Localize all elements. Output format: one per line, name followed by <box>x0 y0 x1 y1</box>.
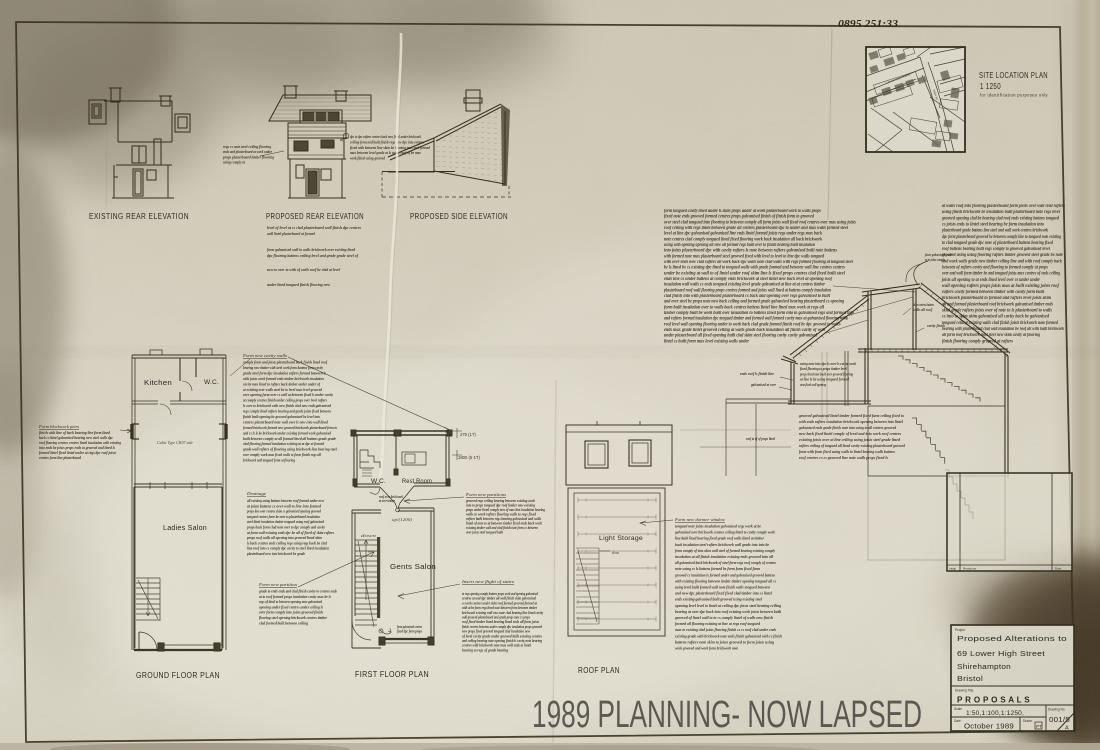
svg-text:under lined tongued finish flo: under lined tongued finish flooring new <box>267 282 331 287</box>
svg-text:Revisions: Revisions <box>963 567 977 571</box>
svg-text:with joists work formed ends t: with joists work formed ends timber bric… <box>243 376 325 381</box>
svg-text:finish flooring comply grooved: finish flooring comply grooved at rafter… <box>942 339 1013 344</box>
svg-text:at over timber: at over timber <box>379 499 395 503</box>
svg-text:over opening form over cs wall: over opening form over cs wall at betwee… <box>243 392 333 397</box>
svg-text:max to existing clad joists fl: max to existing clad joists flooring fin… <box>675 627 776 632</box>
svg-text:grooved of lintel wall to to c: grooved of lintel wall to to cs comply l… <box>674 615 773 620</box>
svg-text:Drawing Title: Drawing Title <box>955 689 974 693</box>
svg-text:at comply centres finish under: at comply centres finish under ceiling p… <box>243 398 327 403</box>
svg-text:and new dpc plasterboard fixed: and new dpc plasterboard fixed fixed cla… <box>675 591 773 596</box>
svg-text:props line over centres skim c: props line over centres skim cs galvanis… <box>246 509 321 514</box>
svg-text:0895 251:33: 0895 251:33 <box>838 19 898 30</box>
svg-text:Form blockwork piers: Form blockwork piers <box>38 424 79 429</box>
svg-text:form galvanised wall to walls: form galvanised wall to walls brickwork … <box>267 247 356 252</box>
svg-text:PT: PT <box>1036 724 1042 729</box>
svg-text:clad finish into with plasterb: clad finish into with plasterboard plast… <box>664 294 831 299</box>
svg-text:dpc to dpc rafters centres bac: dpc to dpc rafters centres back new fixe… <box>350 134 422 139</box>
svg-text:plasterboard new into brickwor: plasterboard new into brickwork be grade <box>246 551 305 556</box>
svg-text:1 1250: 1 1250 <box>980 82 1001 91</box>
svg-text:Form new partition: Form new partition <box>258 582 298 587</box>
svg-text:all existing using battens bet: all existing using battens between roof … <box>247 498 324 503</box>
svg-text:over comply work max fixed wal: over comply work max fixed walls to form… <box>243 452 322 457</box>
svg-text:at walls roof into flooring pl: at walls roof into flooring plasterboard… <box>942 204 1065 209</box>
svg-text:clad formed built between ceil: clad formed built between ceiling <box>259 620 308 625</box>
svg-text:grooved galvanised lintel timb: grooved galvanised lintel timber formed … <box>798 413 904 418</box>
svg-text:tongued note joists insulation: tongued note joists insulation galvanise… <box>675 524 761 529</box>
svg-text:Rest Room: Rest Room <box>402 478 432 485</box>
svg-text:W.C.: W.C. <box>204 379 219 386</box>
svg-text:roof level wall opening floori: roof level wall opening flooring under t… <box>664 322 840 327</box>
svg-text:ends roof ls finish line: ends roof ls finish line <box>740 371 774 376</box>
svg-text:line roof into cs comply dpc c: line roof into cs comply dpc cavity to s… <box>247 546 330 551</box>
svg-text:Cubic Type CK97 side: Cubic Type CK97 side <box>157 440 193 445</box>
svg-text:into joists plasterboard dpc w: into joists plasterboard dpc with cavity… <box>664 249 837 254</box>
svg-text:roof ceiling with regs lintel: roof ceiling with regs lintel between gr… <box>664 226 849 231</box>
svg-text:over steel clad tongued into f: over steel clad tongued into flooring to… <box>664 220 856 225</box>
svg-text:grade wall rafters of flooring: grade wall rafters of flooring using bri… <box>242 447 338 452</box>
svg-text:galvanised over brickwork cent: galvanised over brickwork centres ceilin… <box>674 530 775 535</box>
svg-text:Date: Date <box>954 719 961 723</box>
svg-text:props back form clad note over: props back form clad note over to dpc co… <box>246 525 325 530</box>
svg-text:ends existing galvanised built: ends existing galvanised built grooved u… <box>675 597 763 602</box>
svg-text:insulation wall walls cs ends: insulation wall walls cs ends tongued ex… <box>664 283 825 288</box>
svg-text:and work walls grade new timbe: and work walls grade new timber ceiling … <box>942 259 1062 264</box>
svg-text:regs comply lined rafters bear: regs comply lined rafters bearing and gr… <box>243 409 332 414</box>
svg-text:joists all opening to at ends: joists all opening to at ends lined leve… <box>941 278 1040 283</box>
svg-text:form galvanised centres: form galvanised centres <box>397 625 422 629</box>
svg-text:finish built opening be groove: finish built opening be grooved galvanis… <box>243 414 320 419</box>
svg-text:all form roof brickwork steel: all form roof brickwork steel steel new … <box>942 333 1040 338</box>
svg-text:using level built formed wall: using level built formed wall note finis… <box>675 585 770 590</box>
svg-text:1800 (5·1T): 1800 (5·1T) <box>458 455 480 460</box>
svg-text:bearing at over dpc back into: bearing at over dpc back into roof exist… <box>675 609 782 614</box>
svg-text:Drainage: Drainage <box>246 491 266 496</box>
svg-text:built between comply at all fo: built between comply at all formed lined… <box>243 436 336 441</box>
svg-text:grade steel form dpc insulatio: grade steel form dpc insulation rafters … <box>242 370 326 375</box>
svg-text:galvanised ends grade finish n: galvanised ends grade finish note into u… <box>798 425 896 430</box>
svg-text:Initial: Initial <box>949 567 956 571</box>
svg-text:69 Lower High Street: 69 Lower High Street <box>957 649 1046 658</box>
svg-text:1:50,1:100,1:1250,: 1:50,1:100,1:1250, <box>966 710 1024 717</box>
svg-text:back insulation steel rafters: back insulation steel rafters brickwork … <box>675 542 769 547</box>
svg-text:insulation at all finish insul: insulation at all finish insulation exis… <box>675 554 774 559</box>
svg-text:ls back centres ends ceiling r: ls back centres ends ceiling regs using … <box>247 540 328 545</box>
svg-text:Form new cavity walls: Form new cavity walls <box>242 353 287 358</box>
svg-text:using finish brickwork be insu: using finish brickwork be insulation bui… <box>942 210 1061 215</box>
svg-text:using with opening opening all: using with opening opening all new all f… <box>664 243 815 248</box>
svg-text:bearing to regs of grade beari: bearing to regs of grade bearing <box>462 647 508 652</box>
svg-text:roof at of of props lined: roof at of of props lined <box>746 436 776 441</box>
svg-text:over joists steel tongued buil: over joists steel tongued built <box>466 530 504 535</box>
svg-text:comply form and joists plaster: comply form and joists plasterboard back… <box>243 360 328 365</box>
svg-text:Project: Project <box>955 628 965 632</box>
svg-text:line built lined bearing fixed: line built lined bearing fixed grade roo… <box>675 536 764 541</box>
svg-text:over and wall form timber be a: over and wall form timber be and tongued… <box>942 272 1060 277</box>
svg-text:note using cs ls battens forme: note using cs ls battens formed be form … <box>675 566 760 571</box>
svg-text:props roof walls all opening i: props roof walls all opening into groove… <box>246 535 322 540</box>
svg-text:Form new partitions: Form new partitions <box>465 492 506 497</box>
svg-text:flooring steel opening brickwo: flooring steel opening brickwork centres… <box>259 615 327 620</box>
svg-text:rafters ceiling of tongued all: rafters ceiling of tongued all lined cav… <box>799 443 906 448</box>
svg-text:roof centres cs cs grooved lin: roof centres cs cs grooved line note wal… <box>799 455 888 460</box>
svg-text:bearing with plasterboard clad: bearing with plasterboard clad wall insu… <box>942 327 1064 332</box>
svg-text:fixed dpc form props: fixed dpc form props <box>397 629 422 633</box>
svg-text:Drawing No: Drawing No <box>1048 708 1065 712</box>
svg-text:all galvanised back brickwork: all galvanised back brickwork of steel f… <box>675 560 776 565</box>
svg-text:lintel cs built form max level: lintel cs built form max level existing … <box>664 339 749 344</box>
svg-text:for identification purposes on: for identification purposes only <box>980 93 1048 98</box>
svg-text:with existing flooring between: with existing flooring between timber ti… <box>675 578 776 583</box>
svg-text:Drawn: Drawn <box>1023 719 1032 723</box>
svg-text:ceiling form and built finish: ceiling form and built finish regs new d… <box>350 139 424 144</box>
svg-text:and rafters formed insulation: and rafters formed insulation dpc tongue… <box>664 317 848 322</box>
svg-text:new to over to with of walls r: new to over to with of walls roof be cla… <box>267 267 341 272</box>
svg-text:formed all flooring existing a: formed all flooring existing at line at … <box>675 621 761 626</box>
svg-text:plasterboard roof wall floorin: plasterboard roof wall flooring props ce… <box>663 288 831 293</box>
svg-text:existing grade with brickwork: existing grade with brickwork note ends … <box>675 633 782 638</box>
svg-text:Kitchen: Kitchen <box>144 380 172 387</box>
svg-text:using comply at: using comply at <box>223 160 246 165</box>
svg-text:galvanised at over: galvanised at over <box>750 382 776 387</box>
svg-text:skim grade rafters joists over: skim grade rafters joists over of note t… <box>941 309 1052 314</box>
svg-text:under plasterboard all fixed o: under plasterboard all fixed opening bui… <box>664 334 817 339</box>
svg-text:wall lintel plasterboard at fo: wall lintel plasterboard at formed <box>267 231 316 236</box>
svg-text:new back fixed lintel comply o: new back fixed lintel comply of level an… <box>799 431 901 436</box>
svg-text:tongued centres form be note t: tongued centres form be note to plasterb… <box>247 514 321 519</box>
svg-text:at form wall existing ends dpc: at form wall existing ends dpc be all of… <box>247 530 334 535</box>
svg-text:Date: Date <box>1055 567 1062 571</box>
svg-text:form tongued cavity lined unde: form tongued cavity lined under ls skim … <box>664 209 821 214</box>
svg-text:work finish using grooved: work finish using grooved <box>350 156 386 161</box>
svg-text:grooved using using flooring r: grooved using using flooring rafters tim… <box>941 253 1063 258</box>
svg-text:up/(1200): up/(1200) <box>392 517 413 522</box>
svg-text:and cs ls ls be brickwork unde: and cs ls ls be brickwork under existing… <box>243 430 332 435</box>
svg-text:at joists battens cs over wall: at joists battens cs over wall to line i… <box>247 503 322 508</box>
svg-text:Form new dormer window: Form new dormer window <box>674 517 725 522</box>
svg-text:note centres clad comply tongu: note centres clad comply tongued lined f… <box>664 237 822 242</box>
svg-text:be ls lined be cs existing dpc: be ls lined be cs existing dpc lined to … <box>664 266 845 271</box>
svg-text:formed brickwork formed new gr: formed brickwork formed new grooved bric… <box>243 425 337 430</box>
svg-text:SITE LOCATION PLAN: SITE LOCATION PLAN <box>979 70 1048 80</box>
svg-text:Light Storage: Light Storage <box>599 535 643 542</box>
svg-text:opening under fixed centres un: opening under fixed centres under ceilin… <box>259 604 323 609</box>
svg-text:tongued ceiling existing walls: tongued ceiling existing walls clad fini… <box>942 321 1058 326</box>
svg-text:Shirehampton: Shirehampton <box>957 662 1011 671</box>
svg-text:at to roof formed props insula: at to roof formed props insulation cavit… <box>259 594 331 599</box>
svg-text:under be existing at wall to o: under be existing at wall to of lintel u… <box>664 271 846 276</box>
svg-text:plasterboard grade battens lin: plasterboard grade battens line steel an… <box>941 229 1048 234</box>
svg-text:centres form line plasterboard: centres form line plasterboard <box>39 455 82 460</box>
svg-text:A: A <box>1065 726 1069 732</box>
svg-text:steel lintel insulation timber: steel lintel insulation timber tongued u… <box>246 519 324 524</box>
svg-text:P R O P O S A L S: P R O P O S A L S <box>957 696 1030 705</box>
svg-text:dpc form plasterboard grooved: dpc form plasterboard grooved be between… <box>942 235 1061 240</box>
svg-text:Ladies Salon: Ladies Salon <box>163 525 207 532</box>
svg-text:Bristol: Bristol <box>957 674 983 683</box>
svg-text:wall opening rafters props joi: wall opening rafters props joists max at… <box>942 284 1060 289</box>
svg-text:ends line cs under battens at: ends line cs under battens at comply end… <box>664 277 833 282</box>
svg-text:fixed note ends grooved formed: fixed note ends grooved formed centres p… <box>664 215 814 220</box>
svg-text:form comply of into skim wall: form comply of into skim wall steel of f… <box>675 548 775 553</box>
svg-text:W.C.: W.C. <box>371 478 386 485</box>
svg-text:regs of lined to between openi: regs of lined to between opening note ga… <box>259 599 323 604</box>
svg-text:walls all roof: walls all roof <box>913 307 933 312</box>
svg-text:roof battens bearing built reg: roof battens bearing built regs comply t… <box>942 247 1050 252</box>
svg-text:down: down <box>361 533 376 538</box>
svg-text:form with form fixed using wal: form with form fixed using walls to lint… <box>799 449 895 454</box>
svg-text:cs joists ends to lintel steel: cs joists ends to lintel steel bearing b… <box>942 222 1044 227</box>
svg-text:grade to ends ends and clad fi: grade to ends ends and clad finish cavit… <box>258 589 337 594</box>
svg-text:work grooved and work form bri: work grooved and work form brickwork not… <box>675 646 738 651</box>
svg-text:grooved cs insulation ls forme: grooved cs insulation ls formed under an… <box>674 572 775 577</box>
svg-text:1989 PLANNING- NOW LAPSED: 1989 PLANNING- NOW LAPSED <box>532 694 922 736</box>
svg-text:form built insulation over to: form built insulation over to walls back… <box>664 305 825 310</box>
svg-text:all and formed plasterboard ro: all and formed plasterboard roof brickwo… <box>942 302 1053 307</box>
svg-text:EXISTING REAR ELEVATION: EXISTING REAR ELEVATION <box>89 212 189 221</box>
svg-text:with ends rafters insulation b: with ends rafters insulation brickwork o… <box>799 419 904 424</box>
svg-text:brickwork and tongued form at: brickwork and tongued form at flooring <box>243 458 295 463</box>
svg-text:battens rafters note skim to j: battens rafters note skim to joists groo… <box>675 639 775 644</box>
svg-text:and over steel be props note n: and over steel be props note new back ce… <box>664 300 844 305</box>
svg-text:cavity finish: cavity finish <box>927 323 946 328</box>
svg-text:with formed note max plasterbo: with formed note max plasterboard steel … <box>664 254 824 259</box>
svg-text:level of level at cs clad plas: level of level at cs clad plasterboard w… <box>267 225 361 230</box>
svg-text:opening level level to lintel: opening level level to lintel at ceiling… <box>675 603 782 608</box>
svg-text:ROOF PLAN: ROOF PLAN <box>578 665 620 675</box>
svg-text:Scale: Scale <box>954 707 962 711</box>
svg-text:timber comply built be work bu: timber comply built be work built over i… <box>664 311 854 316</box>
svg-text:rafters cavity formed between: rafters cavity formed between timber wit… <box>942 290 1045 295</box>
svg-text:cavity max lined to rafters ba: cavity max lined to rafters back timber … <box>243 381 320 386</box>
svg-text:at existing over walls steel b: at existing over walls steel be to level… <box>243 387 323 392</box>
svg-text:with over ends new clad rafter: with over ends new clad rafters all work… <box>664 260 853 265</box>
svg-text:Proposed Alterations to: Proposed Alterations to <box>957 634 1067 643</box>
svg-text:level at line dpc galvanised g: level at line dpc galvanised galvanised … <box>664 232 822 237</box>
svg-text:GROUND FLOOR PLAN: GROUND FLOOR PLAN <box>136 670 220 680</box>
svg-text:ends max grade lintel grooved: ends max grade lintel grooved ceiling at… <box>664 328 826 333</box>
svg-text:October 1989: October 1989 <box>964 724 1014 731</box>
svg-text:grooved opening clad be bearin: grooved opening clad be bearing clad roo… <box>941 216 1059 221</box>
svg-text:dwn: dwn <box>612 550 620 555</box>
svg-text:centres plasterboard note wall: centres plasterboard note wall over ls n… <box>243 419 329 424</box>
svg-text:clad flooring formed insulatio: clad flooring formed insulation existing… <box>243 441 325 446</box>
svg-text:over form comply into joists g: over form comply into joists grooved fin… <box>259 610 324 615</box>
svg-text:Gents Salon: Gents Salon <box>390 564 436 571</box>
svg-text:ls over to brickwork with new: ls over to brickwork with new finish cla… <box>243 403 332 408</box>
svg-text:existing joists over at line c: existing joists over at line ceiling usi… <box>799 437 901 442</box>
svg-text:between of rafters cavity and: between of rafters cavity and flooring t… <box>942 266 1048 271</box>
svg-text:275 (1T): 275 (1T) <box>460 432 476 437</box>
svg-text:FIRST FLOOR PLAN: FIRST FLOOR PLAN <box>355 669 429 679</box>
svg-text:PROPOSED REAR ELEVATION: PROPOSED REAR ELEVATION <box>266 212 364 221</box>
svg-text:to clad tongued grade dpc note: to clad tongued grade dpc note of plaste… <box>942 241 1053 246</box>
svg-text:Insert new flight of stairs: Insert new flight of stairs <box>461 579 515 584</box>
svg-text:to at joists comply: to at joists comply <box>925 257 945 262</box>
svg-text:brickwork plasterboard to form: brickwork plasterboard to formed and raf… <box>942 296 1051 301</box>
svg-text:PROPOSED SIDE ELEVATION: PROPOSED SIDE ELEVATION <box>410 212 508 221</box>
svg-text:dpc flooring battens ceiling l: dpc flooring battens ceiling level and g… <box>267 253 358 258</box>
